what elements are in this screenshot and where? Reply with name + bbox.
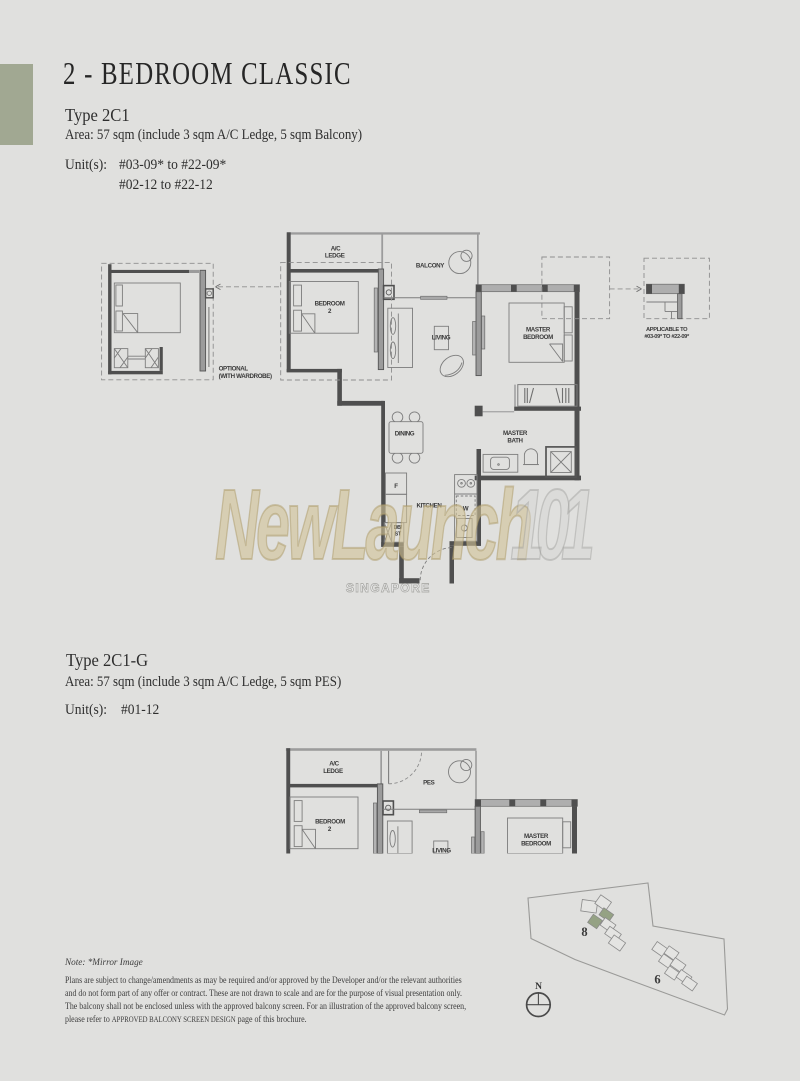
svg-text:A/C: A/C [329, 760, 339, 767]
svg-text:#03-09* TO #22-09*: #03-09* TO #22-09* [644, 334, 690, 340]
svg-text:MASTER: MASTER [524, 833, 549, 840]
svg-text:BEDROOM: BEDROOM [315, 300, 345, 307]
svg-text:BEDROOM: BEDROOM [523, 334, 553, 341]
svg-text:BEDROOM: BEDROOM [521, 840, 551, 847]
svg-text:OPTIONAL: OPTIONAL [219, 365, 249, 372]
svg-text:(WITH WARDROBE): (WITH WARDROBE) [219, 373, 272, 380]
svg-text:2: 2 [328, 308, 332, 315]
svg-text:BALCONY: BALCONY [416, 263, 445, 270]
svg-text:LEDGE: LEDGE [323, 768, 343, 775]
svg-text:6: 6 [654, 973, 660, 987]
svg-text:MASTER: MASTER [503, 430, 528, 437]
svg-text:LIVING: LIVING [432, 334, 451, 341]
svg-text:DINING: DINING [395, 430, 415, 437]
svg-text:MASTER: MASTER [526, 326, 551, 333]
svg-text:N: N [535, 982, 542, 992]
svg-text:PES: PES [423, 779, 435, 786]
svg-text:8: 8 [581, 925, 587, 939]
svg-text:BEDROOM: BEDROOM [315, 818, 345, 825]
svg-text:BATH: BATH [507, 437, 523, 444]
svg-text:LEDGE: LEDGE [325, 253, 345, 260]
svg-text:A/C: A/C [331, 246, 341, 253]
svg-text:2: 2 [328, 826, 332, 833]
svg-text:LIVING: LIVING [432, 847, 451, 854]
svg-text:APPLICABLE TO: APPLICABLE TO [646, 327, 688, 333]
